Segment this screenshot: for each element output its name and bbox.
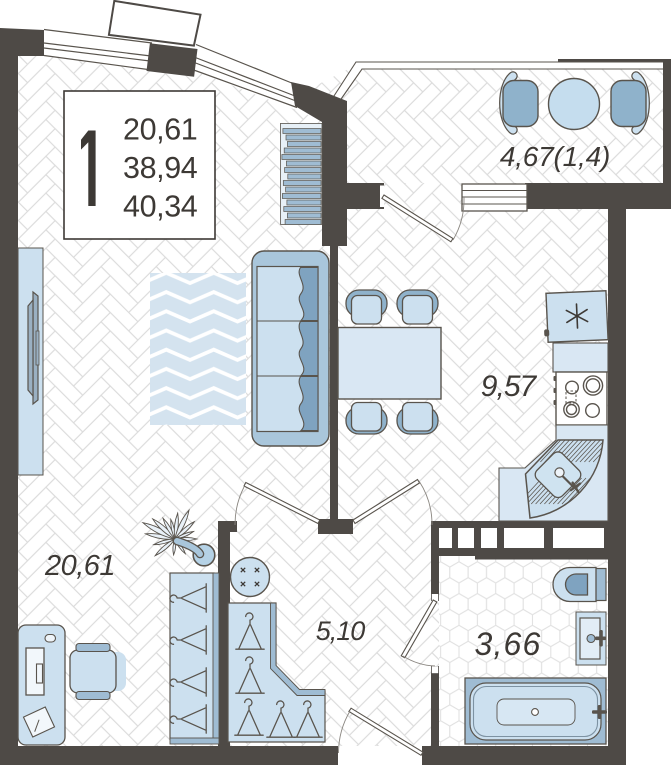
svg-text:3,66: 3,66 bbox=[474, 626, 541, 662]
svg-text:5,10: 5,10 bbox=[316, 616, 366, 646]
svg-text:20,61: 20,61 bbox=[123, 113, 197, 147]
svg-text:38,94: 38,94 bbox=[123, 151, 198, 185]
svg-text:40,34: 40,34 bbox=[123, 190, 198, 224]
svg-text:9,57: 9,57 bbox=[481, 370, 538, 403]
svg-text:4,67(1,4): 4,67(1,4) bbox=[500, 141, 610, 172]
svg-text:20,61: 20,61 bbox=[44, 550, 115, 582]
